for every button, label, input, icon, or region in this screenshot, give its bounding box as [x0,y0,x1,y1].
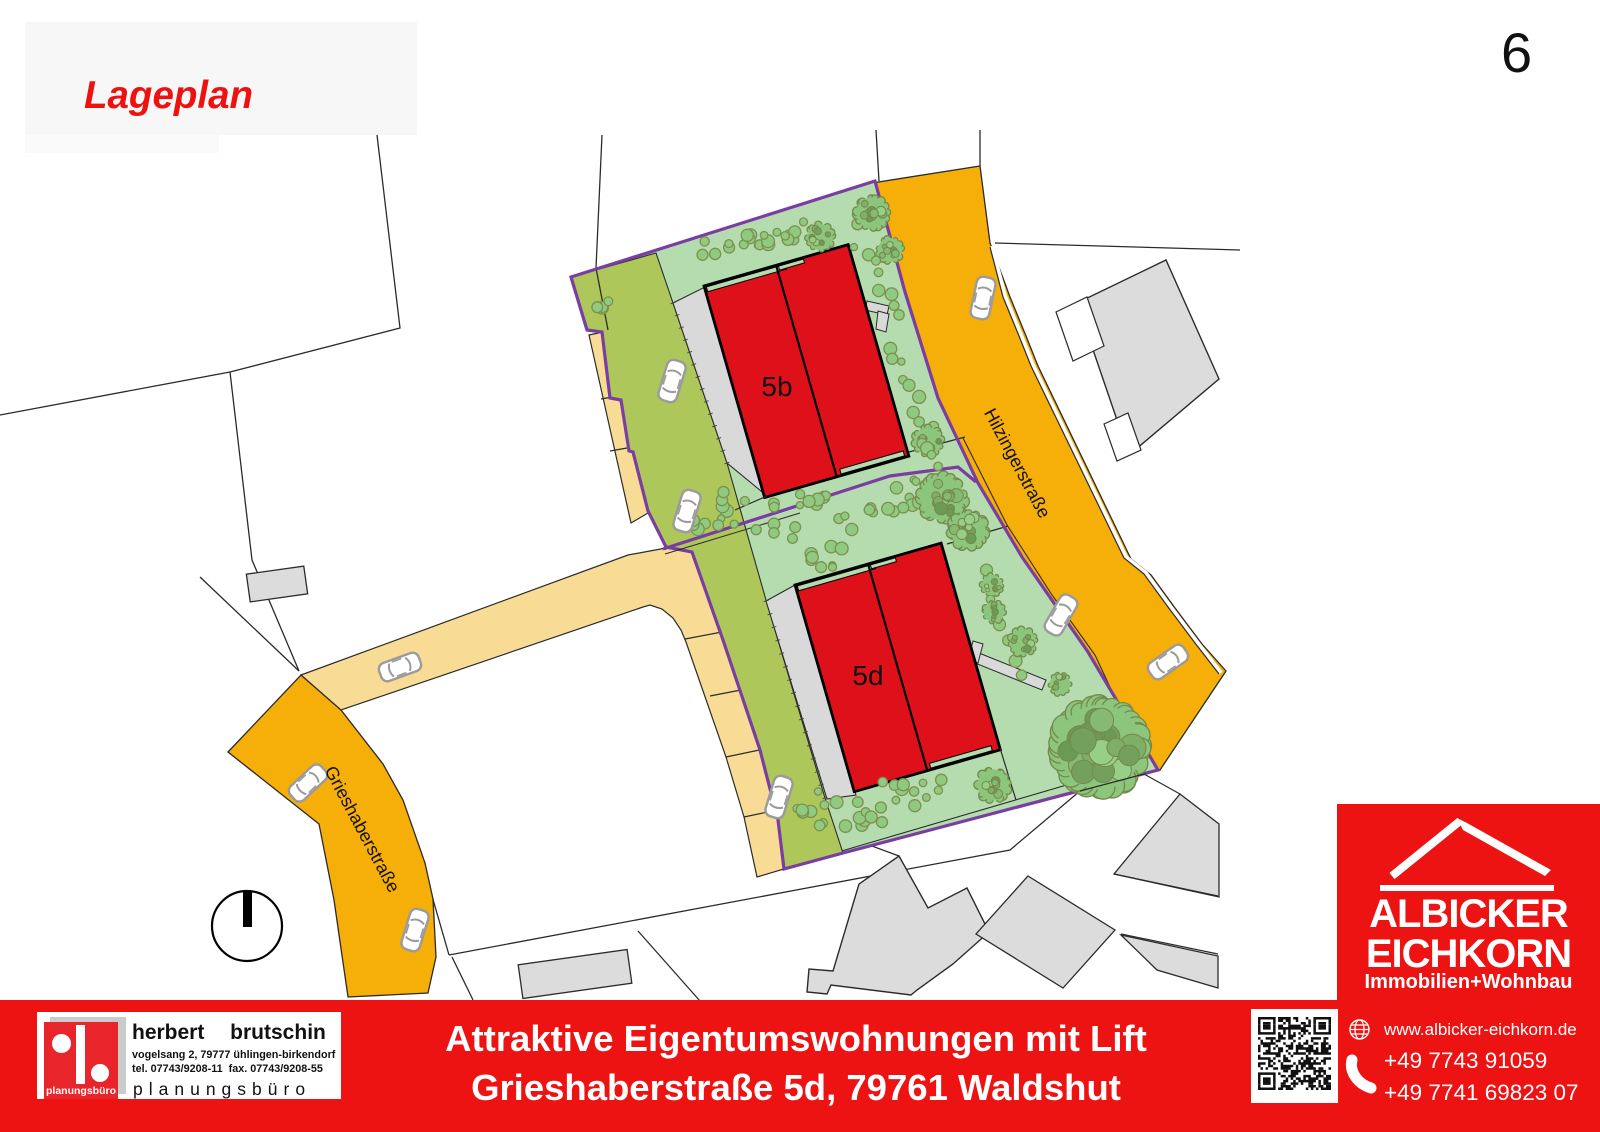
svg-text:5d: 5d [852,660,883,691]
svg-text:5b: 5b [761,371,792,402]
